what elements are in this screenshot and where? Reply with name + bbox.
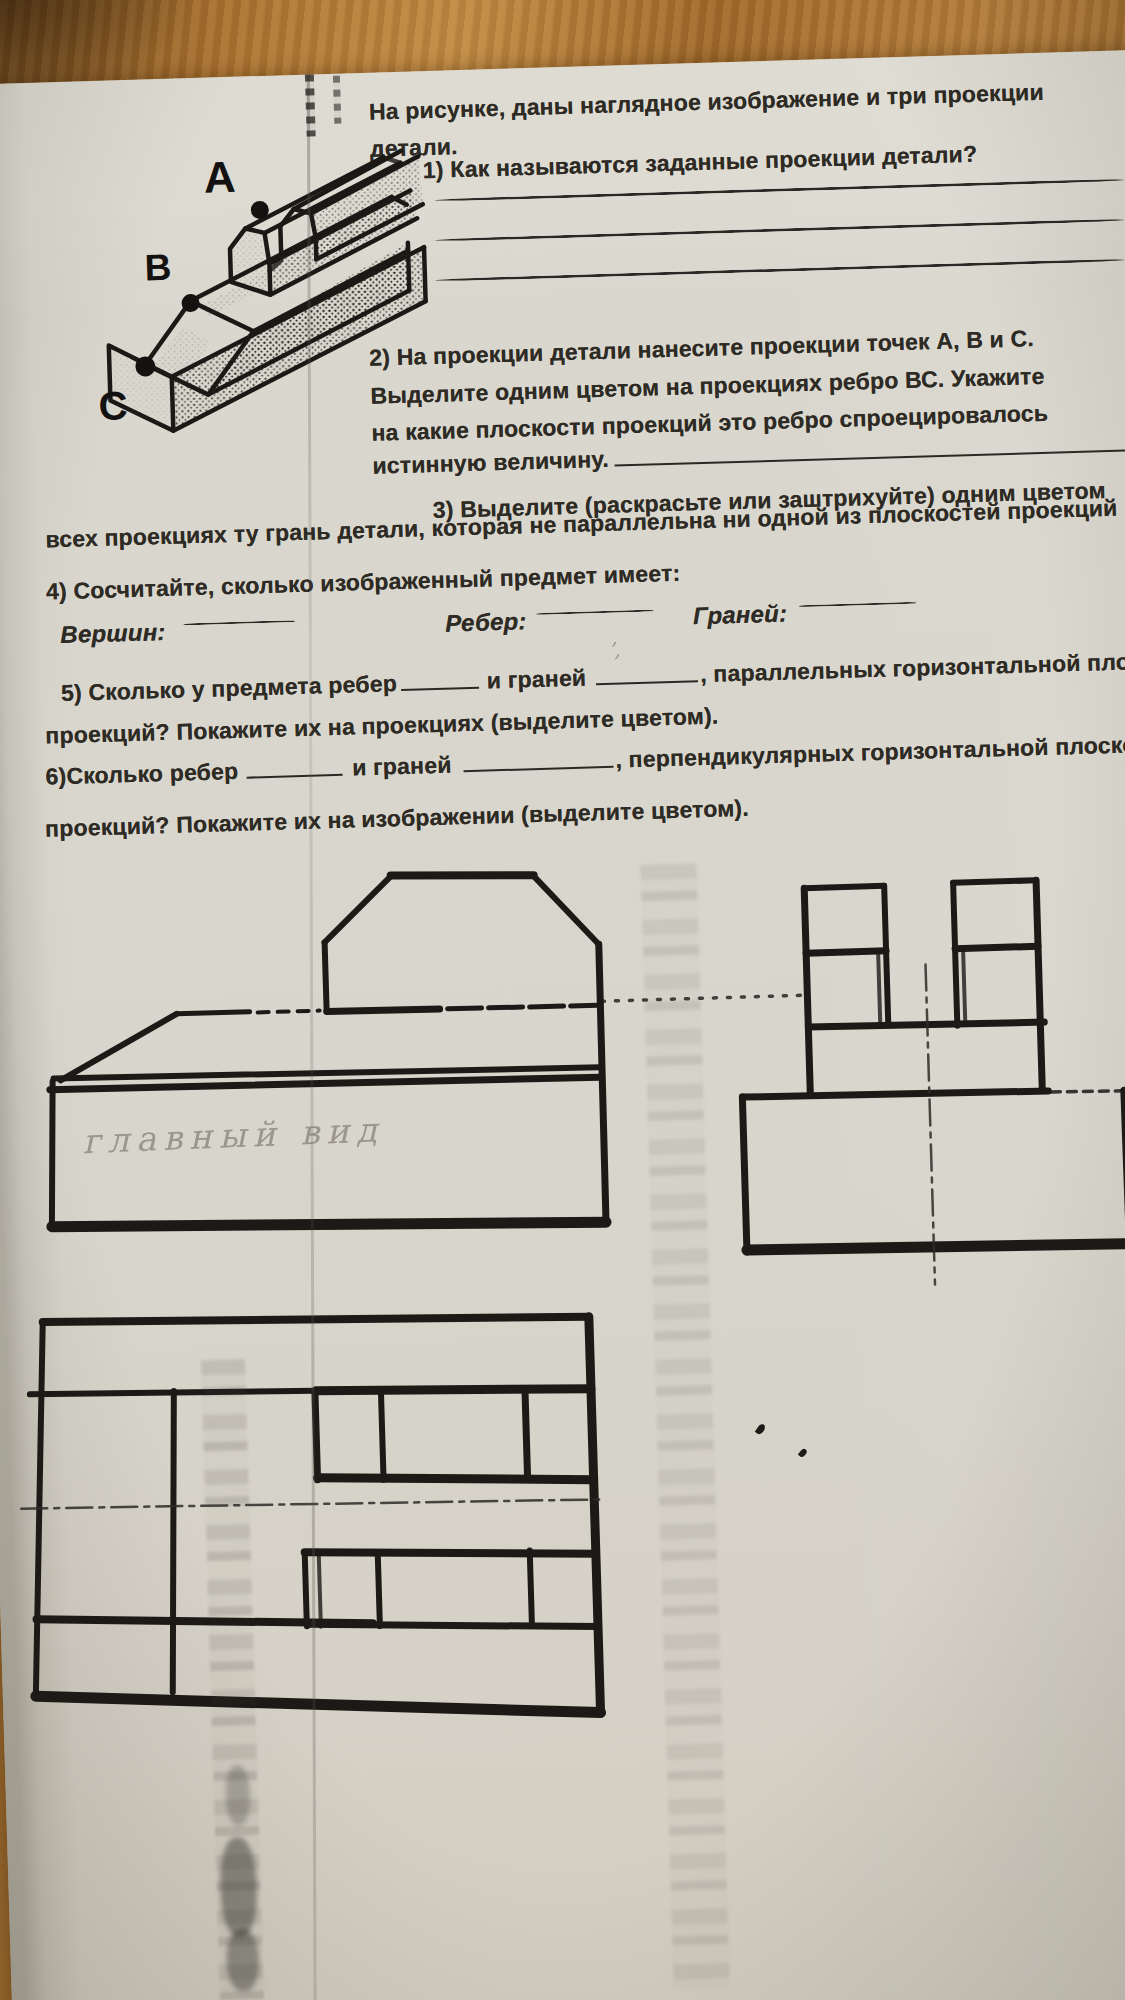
question-6-line-2: проекций? Покажите их на изображении (вы… <box>45 795 750 842</box>
label-a: A <box>203 152 236 202</box>
question-5-blank-edges <box>401 667 480 691</box>
question-1: 1) Как называются заданные проекции дета… <box>422 141 977 184</box>
front-bottom-edge <box>52 1210 606 1238</box>
side-center-line <box>926 965 935 1285</box>
field-label-edges: Ребер: <box>445 607 527 637</box>
ink-speck-1 <box>755 1423 767 1436</box>
question-6-part-2: и граней <box>352 752 452 781</box>
top-outer-top <box>43 1306 589 1333</box>
stray-pencil-mark: ’, <box>608 638 621 662</box>
question-6-part-3: , перпендикулярных горизонтальной плоско… <box>615 730 1125 773</box>
top-view-drawing <box>13 1285 626 1753</box>
smudge-blob-2 <box>225 1765 251 1826</box>
field-blank-edges <box>536 609 654 614</box>
question-5-part-2: и граней <box>486 665 586 694</box>
question-6-blank-faces <box>463 746 614 772</box>
question-5-part-1: 5) Сколько у предмета ребер <box>61 670 398 706</box>
worksheet-paper: На рисунке, даны наглядное изображение и… <box>0 48 1125 2000</box>
question-5-blank-faces <box>596 660 699 685</box>
top-outer-bottom <box>36 1680 601 1730</box>
field-label-faces: Граней: <box>693 600 788 630</box>
smudge-blob-3 <box>226 1929 260 1992</box>
copier-streak-top-2 <box>333 76 341 124</box>
answer-line-1 <box>435 178 1125 201</box>
label-c: C <box>98 383 128 428</box>
field-blank-vertices <box>183 620 295 625</box>
question-6-part-1: 6)Сколько ребер <box>45 758 238 790</box>
isometric-drawing: A B C <box>52 120 433 433</box>
copier-streak-top-1 <box>305 74 316 136</box>
answer-line-2 <box>435 218 1125 241</box>
front-left-edge <box>48 1082 57 1227</box>
top-outer-right <box>589 1317 601 1713</box>
label-b: B <box>144 247 172 289</box>
question-6-blank-edges <box>246 754 343 779</box>
ink-speck-2 <box>798 1448 808 1459</box>
question-2-line-4-label: истинную величину. <box>372 446 609 479</box>
question-2-line-1: 2) На проекции детали нанесите проекции … <box>369 325 1034 371</box>
front-slope <box>59 1014 179 1080</box>
question-5-line-2: проекций? Покажите их на проекциях (выде… <box>45 703 719 749</box>
question-5-part-3: , параллельных горизонтальной плоск <box>700 648 1125 688</box>
field-label-vertices: Вершин: <box>60 618 166 649</box>
projection-dashes <box>601 995 801 1001</box>
front-view-drawing <box>15 853 617 1275</box>
question-5-line-1: 5) Сколько у предмета ребер и граней , п… <box>61 647 1125 707</box>
photo-scene: На рисунке, даны наглядное изображение и… <box>0 0 1125 2000</box>
front-tower-top <box>391 871 534 879</box>
front-chamfer-left <box>323 876 393 942</box>
answer-line-3 <box>435 258 1125 281</box>
field-blank-faces <box>799 602 917 607</box>
question-4: 4) Сосчитайте, сколько изображенный пред… <box>46 560 681 605</box>
intro-line-1: На рисунке, даны наглядное изображение и… <box>369 79 1045 125</box>
